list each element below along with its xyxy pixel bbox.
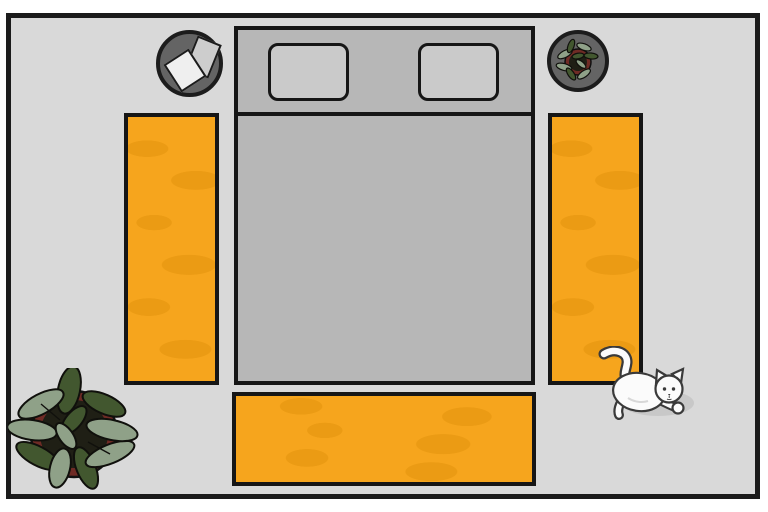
- rug-left: [124, 113, 219, 385]
- pillow-left: [268, 43, 349, 101]
- pillow-right: [418, 43, 499, 101]
- cat-eye-left: [663, 387, 666, 390]
- small-potted-plant: [551, 34, 605, 88]
- bedroom-floor-plan: [0, 0, 768, 512]
- cat-front-paw: [673, 403, 684, 414]
- rug-right: [548, 113, 643, 385]
- floor-plant: [8, 368, 140, 496]
- side-table-plant: [547, 30, 609, 92]
- bed: [234, 26, 535, 385]
- cat-eye-right: [672, 387, 675, 390]
- cat-figure: [592, 346, 696, 426]
- cat-head: [656, 369, 684, 403]
- rug-foot: [232, 392, 536, 486]
- side-table-papers: [156, 30, 223, 97]
